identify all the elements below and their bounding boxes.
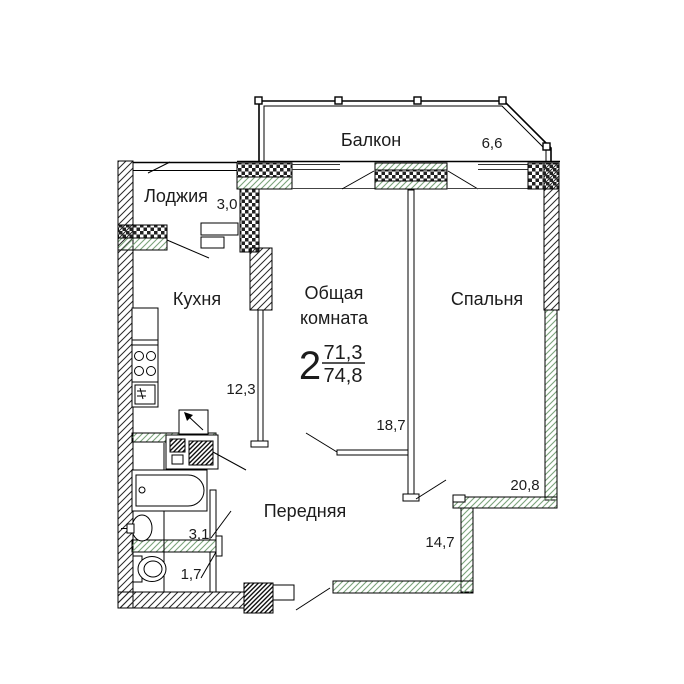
- kitchen-partition-jamb: [251, 441, 268, 447]
- living-door-leaf: [306, 433, 337, 452]
- living-bedroom-partition: [408, 190, 414, 497]
- kitchen-area: 12,3: [226, 381, 255, 398]
- pier-left-checker: [237, 163, 292, 177]
- apartment-rooms-count: 2: [299, 344, 321, 388]
- wc-area: 1,7: [181, 566, 202, 583]
- pier-right-checker: [528, 163, 559, 189]
- pier-center-green-bottom: [375, 181, 447, 189]
- floor-plan-page: { "plan": { "type_note": "apartment floo…: [0, 0, 684, 684]
- hall-label: Передняя: [264, 501, 347, 521]
- loggia-area: 3,0: [217, 196, 238, 213]
- labels: Балкон 6,6 Лоджия 3,0 Кухня 12,3 Общая к…: [144, 130, 539, 583]
- balcony-label: Балкон: [341, 130, 401, 150]
- direction-arrow-box: [179, 410, 208, 434]
- entrance-door-leaf: [296, 588, 330, 610]
- bathroom-area: 3,1: [189, 526, 210, 543]
- railing-post: [543, 143, 550, 150]
- hall-right-wall: [461, 508, 473, 592]
- apartment-summary: 2 71,3 74,8: [299, 342, 365, 388]
- stove-burner: [135, 367, 144, 376]
- floor-plan-svg: Балкон 6,6 Лоджия 3,0 Кухня 12,3 Общая к…: [0, 0, 684, 684]
- divider-end-jamb: [216, 536, 222, 556]
- partitions: [132, 190, 419, 592]
- top-wall: [237, 162, 560, 190]
- bedroom-bottom-wall: [453, 497, 557, 508]
- washbasin-tap: [127, 524, 134, 533]
- balcony-railing: [255, 97, 551, 162]
- vent-duct-3: [172, 455, 183, 464]
- living-label-line1: Общая: [305, 283, 364, 303]
- kitchen-sink-basin: [135, 385, 155, 404]
- bedroom-door-leaf: [416, 480, 446, 499]
- railing-post: [414, 97, 421, 104]
- railing-post: [499, 97, 506, 104]
- living-label-line2: комната: [300, 308, 369, 328]
- living-bottom-wall: [337, 450, 408, 455]
- loggia-window-tick: [148, 162, 170, 173]
- bedroom-label: Спальня: [451, 289, 523, 309]
- balcony-door-left-leaf: [342, 171, 374, 189]
- railing-post: [255, 97, 262, 104]
- shaft-hatched: [250, 248, 272, 310]
- bottom-wall-left: [118, 592, 244, 608]
- hall-area: 14,7: [425, 534, 454, 551]
- vent-duct-1: [170, 439, 185, 452]
- hall-bottom-wall: [333, 581, 473, 593]
- apartment-living-area: 71,3: [324, 342, 363, 364]
- railing-post: [335, 97, 342, 104]
- kitchen-fixtures: [132, 308, 208, 434]
- washbasin: [132, 515, 152, 541]
- loggia-bottom-wall-checker: [118, 225, 167, 238]
- entrance-door-block: [244, 583, 273, 613]
- kitchen-label: Кухня: [173, 289, 221, 309]
- loggia-cabinet-bottom: [201, 237, 224, 248]
- balcony-railing-outer: [259, 101, 551, 162]
- balcony-area: 6,6: [482, 135, 503, 152]
- balcony-railing-inner: [264, 106, 546, 162]
- bathtub-basin: [136, 475, 204, 506]
- entrance-step: [273, 585, 294, 600]
- shaft-checker: [240, 189, 259, 252]
- bedroom-area: 20,8: [510, 477, 539, 494]
- stove-burner: [147, 352, 156, 361]
- pier-left-green: [237, 177, 292, 189]
- stove-burner: [135, 352, 144, 361]
- bathtub-drain: [139, 487, 145, 493]
- balcony-door-right-leaf: [448, 171, 478, 189]
- living-area: 18,7: [376, 417, 405, 434]
- stove-burner: [147, 367, 156, 376]
- loggia-bottom-wall-green: [118, 238, 167, 250]
- apartment-total-area: 74,8: [324, 365, 363, 387]
- kitchen-partition: [258, 310, 263, 443]
- vent-duct-2: [189, 441, 213, 465]
- loggia-label: Лоджия: [144, 186, 208, 206]
- toilet-bowl-inner: [144, 561, 162, 577]
- pier-center-checker: [375, 170, 447, 181]
- bedroom-right-wall: [545, 310, 557, 500]
- partition-end-jamb: [403, 494, 419, 501]
- stove: [132, 345, 158, 382]
- bedroom-wall-jamb: [453, 495, 465, 502]
- kitchen-counter: [132, 308, 158, 345]
- vent-shaft: [166, 435, 218, 469]
- loggia-cabinet-top: [201, 223, 238, 235]
- pier-center-green-top: [375, 163, 447, 170]
